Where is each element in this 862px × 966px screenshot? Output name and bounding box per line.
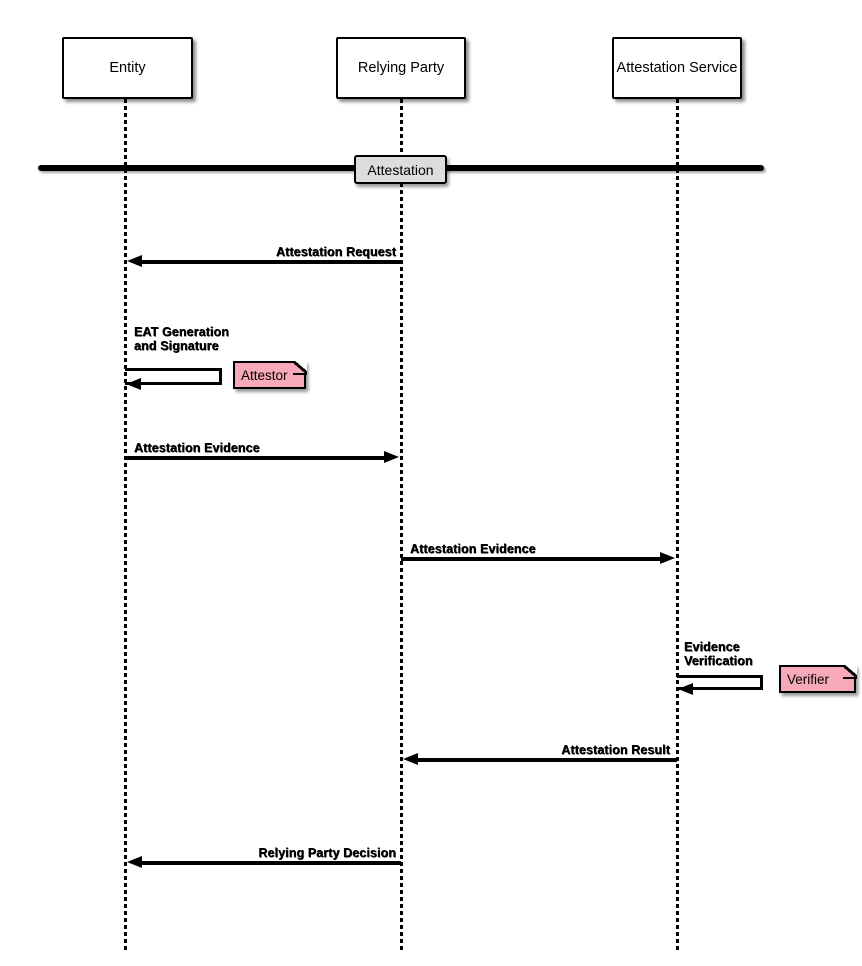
message-label-relying-party-decision: Relying Party Decision bbox=[140, 846, 396, 860]
divider-label: Attestation bbox=[354, 155, 447, 184]
participant-relying-party: Relying Party bbox=[336, 37, 466, 99]
note-verifier: Verifier bbox=[779, 665, 856, 693]
message-label-attestation-request: Attestation Request bbox=[140, 245, 396, 259]
message-label-eat-generation-line2: and Signature bbox=[134, 339, 229, 353]
message-label-evidence-verification-line2: Verification bbox=[684, 654, 753, 668]
arrowhead-left-icon bbox=[126, 378, 141, 390]
message-label-eat-generation-line1: EAT Generation bbox=[134, 325, 229, 339]
participant-entity-label: Entity bbox=[109, 60, 145, 76]
sequence-diagram: Entity Relying Party Attestation Service… bbox=[0, 0, 862, 966]
message-arrow-relying-party-decision bbox=[142, 861, 401, 865]
lifeline-attestation-service bbox=[676, 99, 679, 950]
message-label-evidence-verification-line1: Evidence bbox=[684, 640, 753, 654]
message-arrow-attestation-evidence-1 bbox=[125, 456, 384, 460]
lifeline-entity bbox=[124, 99, 127, 950]
arrowhead-right-icon bbox=[660, 552, 675, 564]
message-label-attestation-evidence-2: Attestation Evidence bbox=[410, 542, 536, 556]
participant-attestation-service-label: Attestation Service bbox=[617, 60, 738, 76]
participant-attestation-service: Attestation Service bbox=[612, 37, 742, 99]
message-arrow-attestation-evidence-2 bbox=[401, 557, 660, 561]
note-attestor: Attestor bbox=[233, 361, 306, 389]
participant-entity: Entity bbox=[62, 37, 193, 99]
message-label-evidence-verification: Evidence Verification bbox=[684, 640, 753, 668]
note-attestor-label: Attestor bbox=[241, 368, 288, 383]
message-arrow-attestation-result bbox=[418, 758, 677, 762]
arrowhead-left-icon bbox=[678, 683, 693, 695]
message-label-attestation-evidence-1: Attestation Evidence bbox=[134, 441, 260, 455]
arrowhead-right-icon bbox=[384, 451, 399, 463]
participant-relying-party-label: Relying Party bbox=[358, 60, 444, 76]
note-verifier-label: Verifier bbox=[787, 672, 829, 687]
message-label-attestation-result: Attestation Result bbox=[414, 743, 670, 757]
lifeline-relying-party bbox=[400, 99, 403, 950]
message-label-eat-generation: EAT Generation and Signature bbox=[134, 325, 229, 353]
divider-label-text: Attestation bbox=[367, 162, 433, 178]
message-arrow-attestation-request bbox=[142, 260, 401, 264]
